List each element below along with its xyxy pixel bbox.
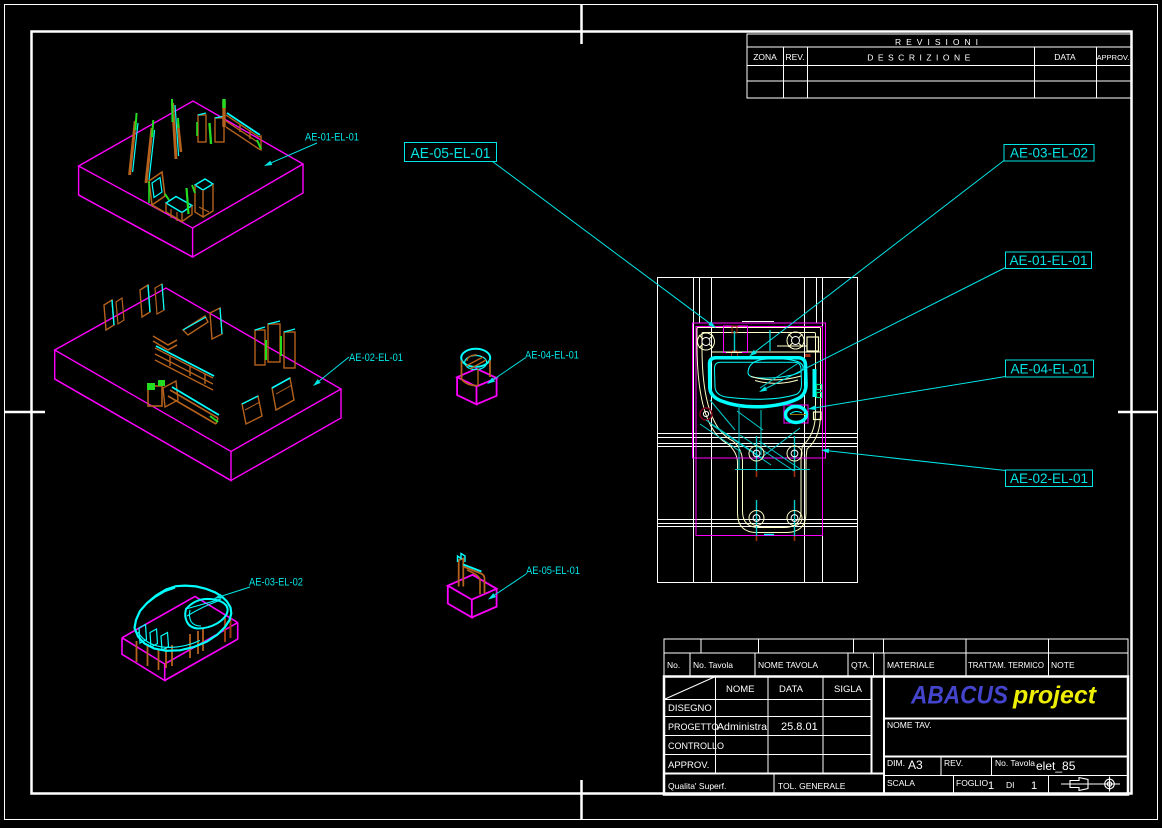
svg-text:AE-01-EL-01: AE-01-EL-01 [305, 132, 359, 144]
svg-text:25.8.01: 25.8.01 [781, 721, 818, 733]
svg-text:1: 1 [1031, 780, 1037, 792]
svg-text:1: 1 [988, 780, 994, 792]
svg-text:Administra: Administra [717, 721, 767, 733]
svg-text:MATERIALE: MATERIALE [887, 660, 935, 670]
svg-text:DIM.: DIM. [887, 758, 905, 768]
svg-text:project: project [1012, 682, 1098, 710]
svg-text:ABACUS: ABACUS [910, 682, 1008, 710]
svg-text:AE-03-EL-02: AE-03-EL-02 [249, 577, 303, 589]
svg-text:NOME: NOME [726, 684, 755, 695]
svg-text:DATA: DATA [1054, 52, 1076, 62]
svg-text:ZONA: ZONA [753, 52, 777, 62]
svg-text:No.: No. [667, 660, 680, 670]
svg-text:AE-03-EL-02: AE-03-EL-02 [1010, 145, 1088, 161]
svg-text:AE-05-EL-01: AE-05-EL-01 [526, 565, 580, 577]
svg-text:CONTROLLO: CONTROLLO [668, 741, 724, 751]
svg-text:AE-04-EL-01: AE-04-EL-01 [525, 350, 579, 362]
svg-text:TRATTAM. TERMICO: TRATTAM. TERMICO [968, 661, 1044, 670]
svg-text:TOL. GENERALE: TOL. GENERALE [778, 781, 846, 791]
svg-text:DESCRIZIONE: DESCRIZIONE [867, 53, 975, 63]
svg-text:No. Tavola: No. Tavola [995, 758, 1035, 768]
svg-text:SCALA: SCALA [887, 778, 915, 788]
svg-text:AE-02-EL-01: AE-02-EL-01 [349, 352, 403, 364]
svg-text:Qualita' Superf.: Qualita' Superf. [668, 781, 726, 791]
svg-text:APPROV.: APPROV. [1097, 53, 1130, 62]
svg-text:No. Tavola: No. Tavola [693, 660, 733, 670]
svg-text:QTA.: QTA. [851, 660, 870, 670]
svg-text:REV.: REV. [944, 758, 963, 768]
svg-text:FOGLIO: FOGLIO [956, 778, 989, 788]
svg-text:REV.: REV. [785, 52, 804, 62]
svg-text:AE-05-EL-01: AE-05-EL-01 [411, 146, 491, 162]
svg-text:NOME TAV.: NOME TAV. [887, 720, 932, 730]
svg-text:REVISIONI: REVISIONI [895, 37, 983, 47]
svg-text:elet_85: elet_85 [1036, 759, 1076, 773]
svg-text:SIGLA: SIGLA [834, 684, 863, 695]
svg-text:AE-02-EL-01: AE-02-EL-01 [1010, 470, 1088, 486]
svg-text:DISEGNO: DISEGNO [668, 703, 712, 714]
svg-text:NOTE: NOTE [1051, 660, 1075, 670]
svg-text:DATA: DATA [779, 684, 804, 695]
svg-text:NOME TAVOLA: NOME TAVOLA [758, 660, 818, 670]
svg-text:PROGETTO: PROGETTO [668, 722, 718, 732]
svg-text:AE-04-EL-01: AE-04-EL-01 [1011, 361, 1089, 377]
svg-text:DI: DI [1006, 780, 1015, 790]
svg-text:APPROV.: APPROV. [668, 760, 709, 771]
svg-text:A3: A3 [908, 758, 923, 772]
svg-text:AE-01-EL-01: AE-01-EL-01 [1010, 252, 1088, 268]
